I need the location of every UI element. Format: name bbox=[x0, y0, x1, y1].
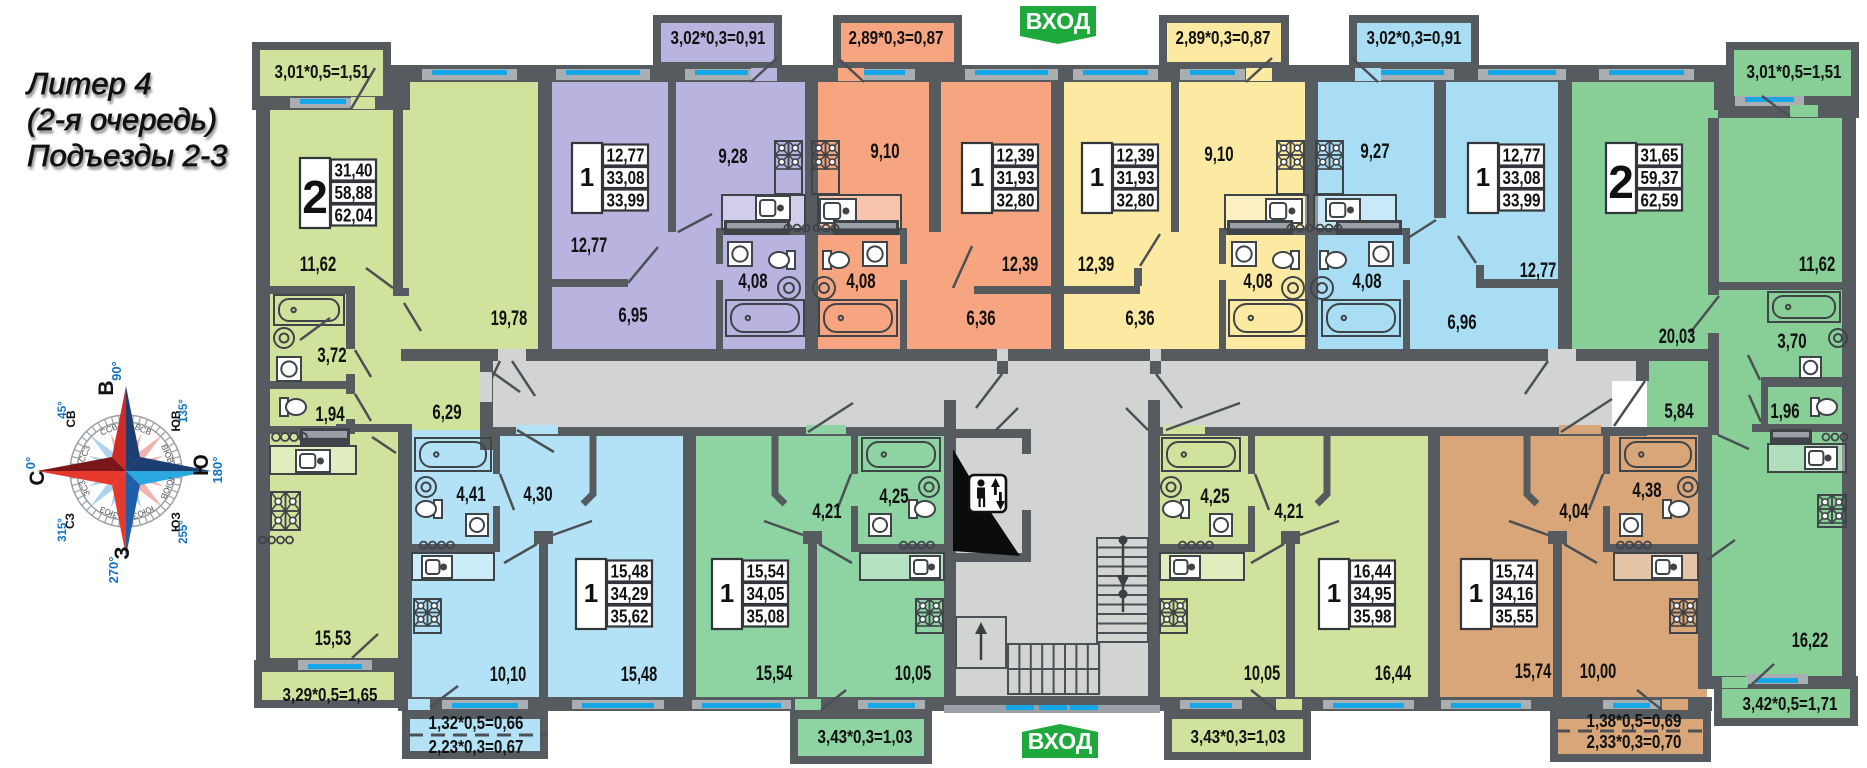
svg-text:10,05: 10,05 bbox=[1244, 662, 1281, 685]
svg-text:6,36: 6,36 bbox=[1125, 307, 1154, 330]
svg-text:33,99: 33,99 bbox=[1503, 191, 1541, 211]
svg-text:1,94: 1,94 bbox=[315, 403, 344, 426]
svg-text:3,02*0,3=0,91: 3,02*0,3=0,91 bbox=[671, 28, 766, 48]
svg-text:1: 1 bbox=[970, 162, 984, 192]
svg-text:4,25: 4,25 bbox=[1200, 485, 1229, 508]
svg-text:20,03: 20,03 bbox=[1659, 325, 1696, 348]
svg-text:2,23*0,3=0,67: 2,23*0,3=0,67 bbox=[429, 737, 524, 757]
svg-text:15,54: 15,54 bbox=[747, 562, 785, 582]
svg-text:3,43*0,3=1,03: 3,43*0,3=1,03 bbox=[1191, 727, 1286, 747]
svg-text:12,77: 12,77 bbox=[1503, 146, 1541, 166]
svg-text:6,36: 6,36 bbox=[966, 307, 995, 330]
svg-text:3,02*0,3=0,91: 3,02*0,3=0,91 bbox=[1367, 28, 1462, 48]
svg-text:10,10: 10,10 bbox=[490, 663, 527, 686]
svg-text:ССЗ: ССЗ bbox=[76, 444, 92, 464]
svg-text:12,77: 12,77 bbox=[607, 146, 645, 166]
svg-text:255°: 255° bbox=[178, 520, 190, 544]
svg-text:1,32*0,5=0,66: 1,32*0,5=0,66 bbox=[429, 713, 524, 733]
svg-text:12,39: 12,39 bbox=[1078, 253, 1115, 276]
svg-text:1: 1 bbox=[1476, 162, 1490, 192]
svg-text:2: 2 bbox=[302, 171, 328, 223]
svg-text:33,08: 33,08 bbox=[607, 168, 645, 188]
svg-text:3,29*0,5=1,65: 3,29*0,5=1,65 bbox=[283, 685, 378, 705]
svg-text:3,42*0,5=1,71: 3,42*0,5=1,71 bbox=[1743, 694, 1838, 714]
svg-text:2,33*0,3=0,70: 2,33*0,3=0,70 bbox=[1587, 732, 1682, 752]
svg-text:62,59: 62,59 bbox=[1641, 191, 1679, 211]
svg-text:33,99: 33,99 bbox=[607, 191, 645, 211]
svg-text:15,53: 15,53 bbox=[315, 627, 352, 650]
svg-text:6,29: 6,29 bbox=[432, 401, 461, 424]
svg-text:16,22: 16,22 bbox=[1792, 629, 1829, 652]
svg-text:15,54: 15,54 bbox=[756, 662, 793, 685]
svg-text:90°: 90° bbox=[109, 361, 124, 381]
svg-text:ЗЮЗ: ЗЮЗ bbox=[98, 504, 119, 520]
svg-text:4,21: 4,21 bbox=[812, 500, 841, 523]
svg-text:34,29: 34,29 bbox=[611, 584, 649, 604]
svg-text:31,93: 31,93 bbox=[1117, 168, 1155, 188]
svg-text:4,08: 4,08 bbox=[846, 270, 875, 293]
svg-text:6,96: 6,96 bbox=[1447, 311, 1476, 334]
svg-text:2: 2 bbox=[1608, 156, 1634, 208]
svg-text:3,43*0,3=1,03: 3,43*0,3=1,03 bbox=[818, 727, 913, 747]
svg-text:35,08: 35,08 bbox=[747, 607, 785, 627]
svg-text:33,08: 33,08 bbox=[1503, 168, 1541, 188]
svg-text:1: 1 bbox=[580, 162, 594, 192]
svg-text:9,28: 9,28 bbox=[718, 145, 747, 168]
svg-text:3,72: 3,72 bbox=[317, 344, 346, 367]
svg-text:С: С bbox=[26, 470, 49, 485]
svg-text:1: 1 bbox=[1090, 162, 1104, 192]
svg-text:4,21: 4,21 bbox=[1274, 500, 1303, 523]
svg-text:62,04: 62,04 bbox=[335, 206, 373, 226]
svg-text:4,08: 4,08 bbox=[1243, 270, 1272, 293]
svg-text:3,01*0,5=1,51: 3,01*0,5=1,51 bbox=[275, 62, 370, 82]
svg-text:0°: 0° bbox=[23, 457, 38, 469]
svg-text:4,30: 4,30 bbox=[523, 483, 552, 506]
svg-text:270°: 270° bbox=[106, 557, 121, 584]
svg-text:180°: 180° bbox=[210, 457, 225, 484]
svg-text:12,77: 12,77 bbox=[571, 234, 608, 257]
svg-text:2,89*0,3=0,87: 2,89*0,3=0,87 bbox=[1176, 28, 1271, 48]
svg-text:15,48: 15,48 bbox=[611, 562, 649, 582]
svg-text:12,39: 12,39 bbox=[997, 146, 1035, 166]
svg-text:15,48: 15,48 bbox=[621, 663, 658, 686]
svg-text:3,70: 3,70 bbox=[1777, 330, 1806, 353]
svg-text:4,04: 4,04 bbox=[1559, 500, 1588, 523]
svg-text:12,77: 12,77 bbox=[1520, 259, 1557, 282]
svg-text:16,44: 16,44 bbox=[1354, 562, 1392, 582]
svg-text:34,05: 34,05 bbox=[747, 584, 785, 604]
svg-text:1: 1 bbox=[1469, 578, 1483, 608]
svg-text:В: В bbox=[95, 380, 118, 395]
svg-text:9,10: 9,10 bbox=[1204, 143, 1233, 166]
svg-text:31,40: 31,40 bbox=[335, 161, 373, 181]
svg-text:1,96: 1,96 bbox=[1770, 400, 1799, 423]
svg-text:19,78: 19,78 bbox=[491, 307, 528, 330]
svg-text:10,00: 10,00 bbox=[1580, 660, 1617, 683]
svg-text:4,08: 4,08 bbox=[1352, 270, 1381, 293]
svg-text:(2-я очередь): (2-я очередь) bbox=[27, 102, 217, 137]
svg-text:5,84: 5,84 bbox=[1664, 400, 1693, 423]
svg-text:Подъезды 2-3: Подъезды 2-3 bbox=[27, 138, 227, 173]
svg-text:Литер 4: Литер 4 bbox=[25, 66, 152, 101]
svg-text:35,62: 35,62 bbox=[611, 607, 649, 627]
svg-text:ЗСЗ: ЗСЗ bbox=[77, 479, 92, 498]
svg-text:4,38: 4,38 bbox=[1632, 479, 1661, 502]
svg-text:12,39: 12,39 bbox=[1002, 253, 1039, 276]
svg-text:15,74: 15,74 bbox=[1515, 660, 1552, 683]
svg-text:1,38*0,5=0,69: 1,38*0,5=0,69 bbox=[1587, 711, 1682, 731]
svg-text:31,65: 31,65 bbox=[1641, 146, 1679, 166]
svg-text:9,27: 9,27 bbox=[1360, 140, 1389, 163]
svg-text:1: 1 bbox=[1327, 578, 1341, 608]
svg-text:34,16: 34,16 bbox=[1496, 584, 1534, 604]
svg-text:32,80: 32,80 bbox=[997, 191, 1035, 211]
svg-text:58,88: 58,88 bbox=[335, 183, 373, 203]
svg-text:4,08: 4,08 bbox=[738, 270, 767, 293]
svg-text:1: 1 bbox=[584, 578, 598, 608]
svg-text:35,55: 35,55 bbox=[1496, 607, 1534, 627]
svg-text:1: 1 bbox=[720, 578, 734, 608]
svg-text:4,41: 4,41 bbox=[456, 483, 485, 506]
svg-text:31,93: 31,93 bbox=[997, 168, 1035, 188]
svg-text:34,95: 34,95 bbox=[1354, 584, 1392, 604]
svg-text:45°: 45° bbox=[57, 401, 69, 419]
svg-text:135°: 135° bbox=[178, 399, 190, 423]
svg-text:59,37: 59,37 bbox=[1641, 168, 1679, 188]
svg-text:15,74: 15,74 bbox=[1496, 562, 1534, 582]
svg-text:32,80: 32,80 bbox=[1117, 191, 1155, 211]
svg-text:ВХОД: ВХОД bbox=[1026, 8, 1090, 34]
svg-text:3,01*0,5=1,51: 3,01*0,5=1,51 bbox=[1747, 62, 1842, 82]
svg-text:6,95: 6,95 bbox=[618, 304, 647, 327]
svg-text:11,62: 11,62 bbox=[1799, 253, 1836, 276]
svg-text:10,05: 10,05 bbox=[895, 662, 932, 685]
svg-text:315°: 315° bbox=[57, 518, 69, 542]
svg-text:9,10: 9,10 bbox=[870, 140, 899, 163]
svg-text:35,98: 35,98 bbox=[1354, 607, 1392, 627]
svg-text:16,44: 16,44 bbox=[1375, 662, 1412, 685]
svg-text:4,25: 4,25 bbox=[879, 485, 908, 508]
svg-text:12,39: 12,39 bbox=[1117, 146, 1155, 166]
svg-text:ВХОД: ВХОД bbox=[1028, 728, 1092, 754]
svg-text:2,89*0,3=0,87: 2,89*0,3=0,87 bbox=[849, 28, 944, 48]
svg-text:ВСВ: ВСВ bbox=[133, 422, 153, 438]
svg-text:11,62: 11,62 bbox=[300, 253, 337, 276]
